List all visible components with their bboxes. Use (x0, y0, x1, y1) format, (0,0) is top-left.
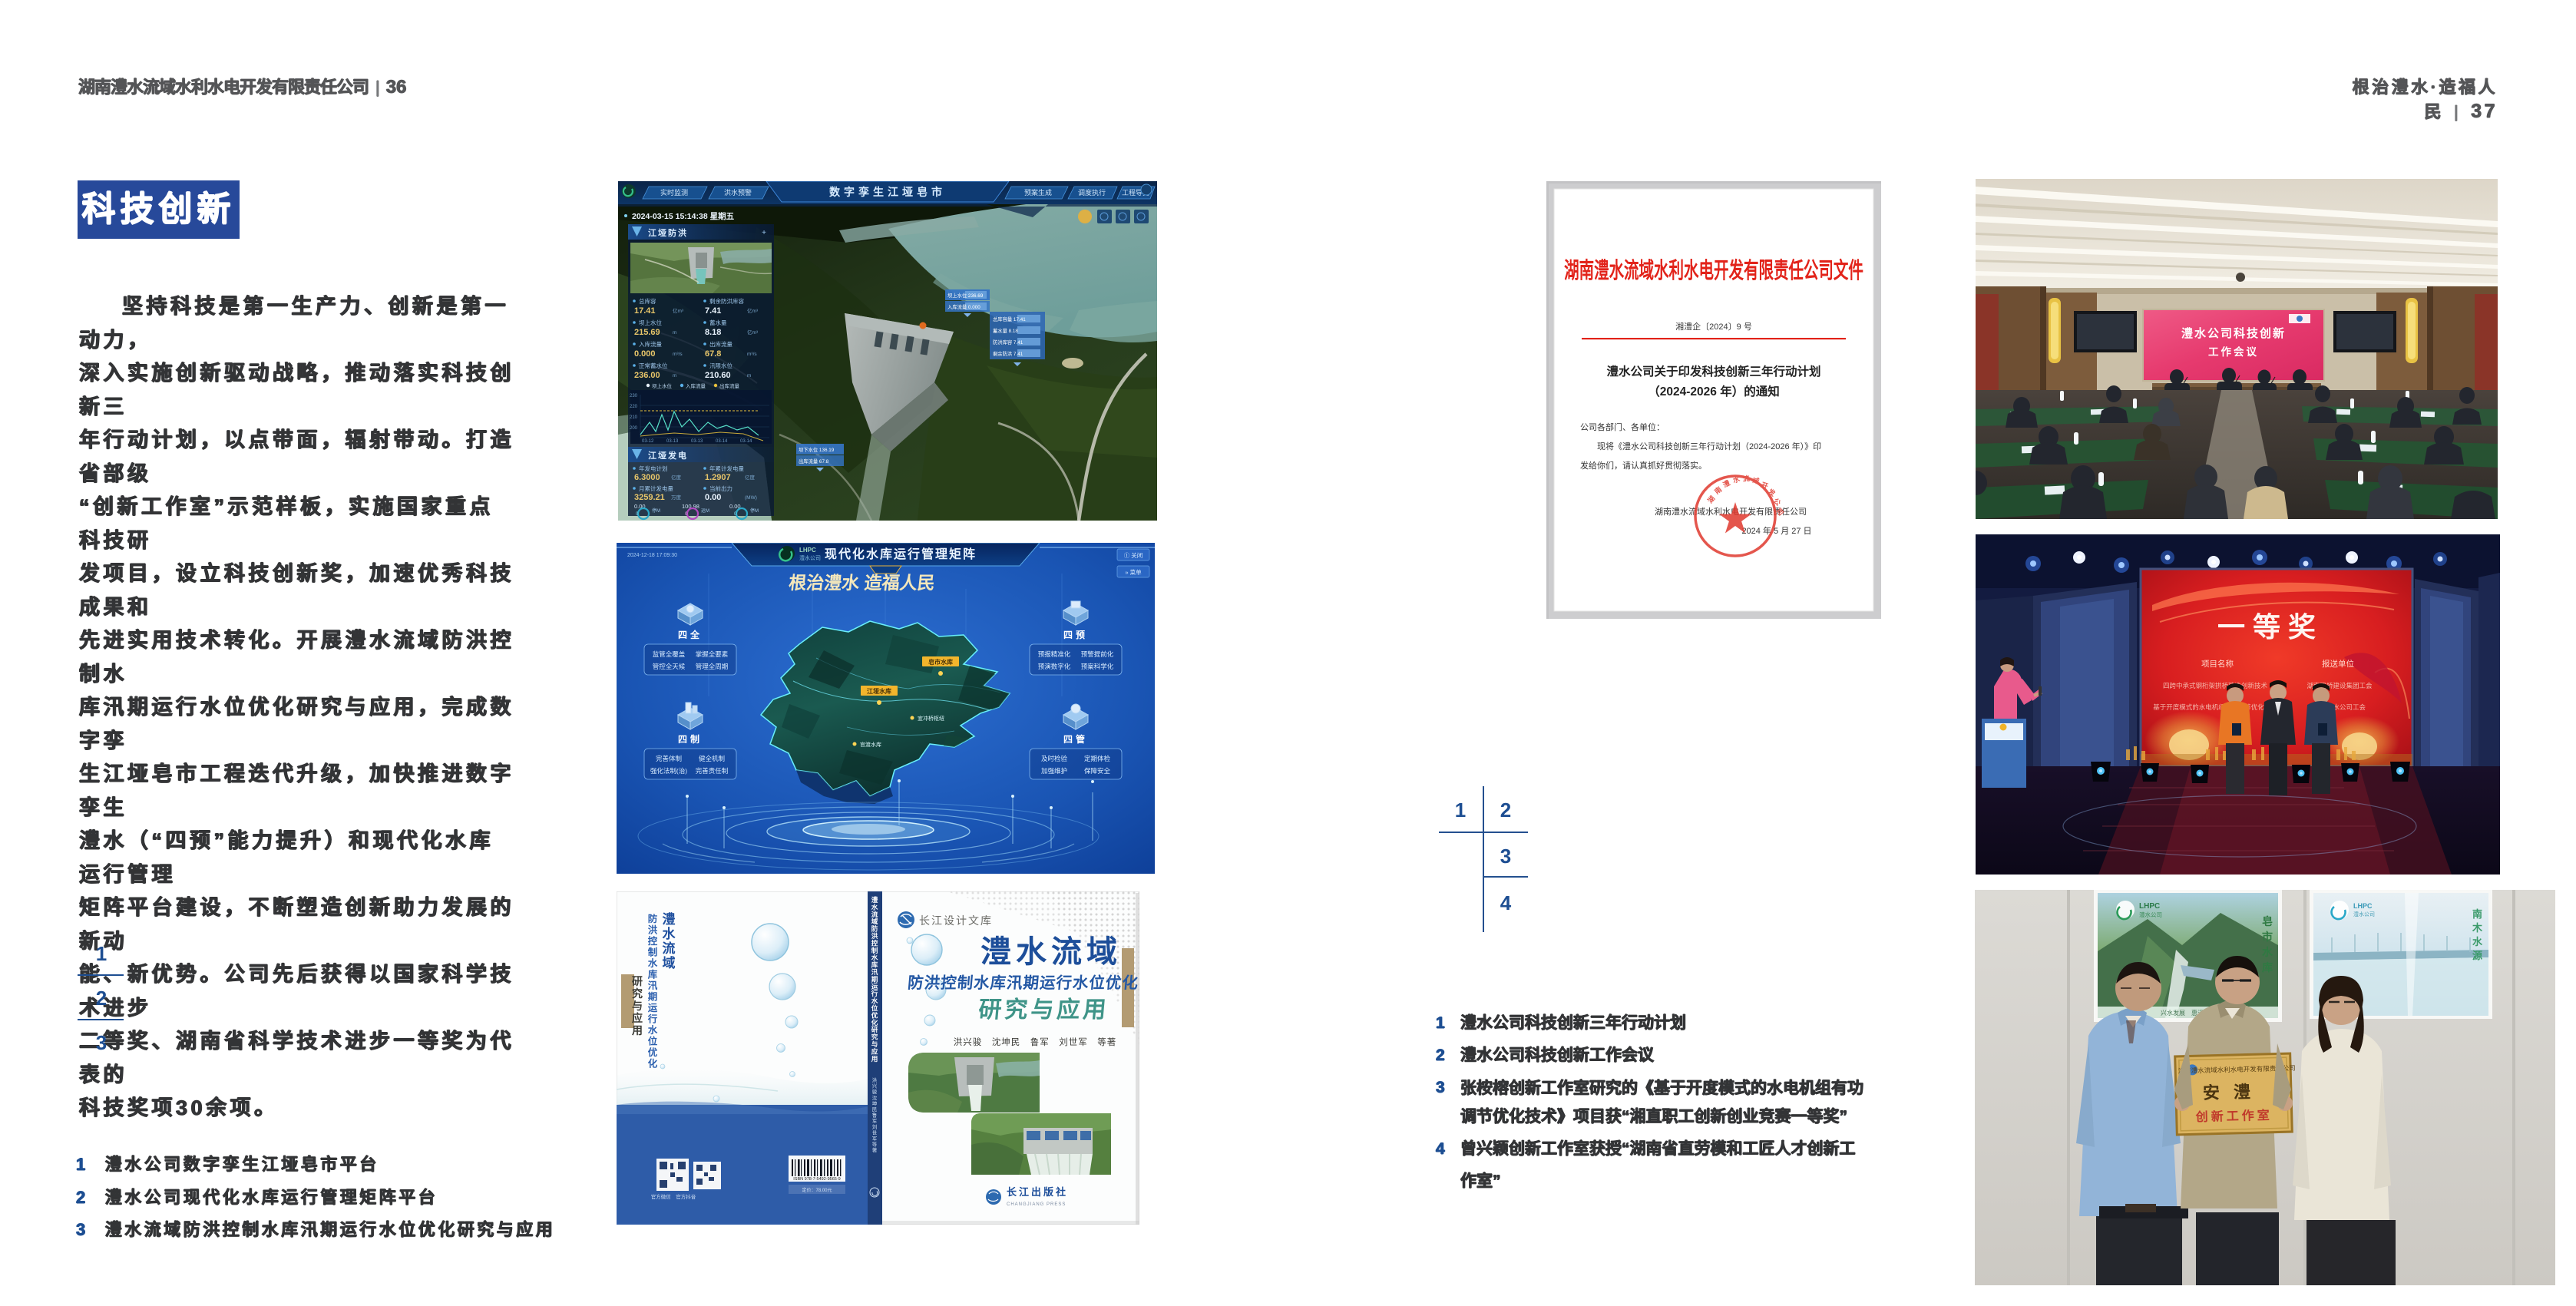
svg-text:南: 南 (2472, 908, 2482, 920)
svg-text:预演数字化: 预演数字化 (1038, 663, 1071, 670)
svg-text:掌握全要素: 掌握全要素 (696, 650, 729, 658)
svg-text:200: 200 (630, 426, 638, 431)
svg-text:预案生成: 预案生成 (1024, 188, 1052, 197)
svg-text:项目名称: 项目名称 (2201, 659, 2234, 669)
svg-text:ISBN 978-7-5492-9565-9: ISBN 978-7-5492-9565-9 (793, 1177, 840, 1182)
svg-text:出库流量: 出库流量 (719, 382, 740, 389)
svg-text:皂: 皂 (2262, 915, 2273, 927)
svg-text:四全: 四全 (678, 629, 703, 640)
svg-text:实时监测: 实时监测 (660, 188, 688, 197)
svg-text:强化法制(治): 强化法制(治) (650, 767, 687, 775)
svg-text:6.3000: 6.3000 (634, 473, 660, 482)
svg-text:健全机制: 健全机制 (699, 755, 725, 762)
svg-text:停M: 停M (652, 508, 660, 514)
svg-text:及时检验: 及时检验 (1041, 755, 1068, 762)
svg-text:（2024-2026 年）的通知: （2024-2026 年）的通知 (1648, 384, 1779, 398)
svg-text:定价：78.00元: 定价：78.00元 (802, 1187, 832, 1193)
svg-text:湘澧企〔2024〕9 号: 湘澧企〔2024〕9 号 (1675, 321, 1752, 332)
svg-text:2024 年 5 月 27 日: 2024 年 5 月 27 日 (1741, 525, 1811, 536)
svg-text:(MW): (MW) (745, 495, 757, 501)
svg-text:四制: 四制 (678, 733, 703, 745)
svg-text:管理全周期: 管理全周期 (696, 663, 729, 670)
svg-text:CHANGJIANG PRESS: CHANGJIANG PRESS (1007, 1202, 1066, 1207)
svg-text:水: 水 (2262, 946, 2273, 958)
svg-text:水: 水 (2472, 936, 2483, 947)
svg-text:3259.21: 3259.21 (634, 493, 665, 502)
svg-text:7.41: 7.41 (705, 306, 721, 316)
svg-text:湖南澧水流域水利水电开发有限责任公司文件: 湖南澧水流域水利水电开发有限责任公司文件 (1564, 257, 1863, 283)
svg-text:根治澧水 造福人民: 根治澧水 造福人民 (788, 573, 936, 593)
svg-text:澧水公司关于印发科技创新三年行动计划: 澧水公司关于印发科技创新三年行动计划 (1606, 364, 1820, 379)
svg-text:一等奖: 一等奖 (2217, 611, 2323, 643)
svg-text:m: m (747, 373, 751, 379)
svg-text:总库容量 17.41: 总库容量 17.41 (993, 316, 1026, 322)
svg-text:LHPC: LHPC (2139, 902, 2160, 911)
svg-text:防洪控制水库汛期运行水位优化: 防洪控制水库汛期运行水位优化 (647, 913, 658, 1070)
svg-text:汛限水位: 汛限水位 (709, 362, 732, 369)
svg-text:安澧: 安澧 (2203, 1082, 2265, 1103)
svg-text:0.00: 0.00 (705, 493, 721, 502)
svg-text:入库流量 0.000: 入库流量 0.000 (947, 303, 980, 310)
svg-text:江垭防洪: 江垭防洪 (648, 227, 688, 238)
svg-text:03-13: 03-13 (666, 439, 679, 444)
svg-text:研究与应用: 研究与应用 (977, 997, 1110, 1023)
svg-text:江垭水库: 江垭水库 (867, 687, 891, 695)
svg-text:m: m (673, 373, 676, 379)
svg-text:入库流量: 入库流量 (686, 382, 706, 389)
svg-text:澧水流域: 澧水流域 (980, 935, 1122, 969)
svg-text:加强维护: 加强维护 (1041, 767, 1067, 775)
svg-text:入库流量: 入库流量 (639, 340, 662, 348)
svg-text:市: 市 (2262, 931, 2273, 943)
svg-text:管控全天候: 管控全天候 (653, 663, 686, 670)
svg-text:洪水预警: 洪水预警 (724, 188, 752, 197)
svg-text:源: 源 (2472, 950, 2482, 961)
svg-text:03-12: 03-12 (642, 439, 654, 444)
svg-text:工作会议: 工作会议 (2208, 346, 2259, 358)
svg-text:官方微信 官方抖音: 官方微信 官方抖音 (651, 1193, 696, 1200)
svg-text:210.60: 210.60 (705, 371, 731, 380)
svg-text:① 关闭: ① 关闭 (1124, 551, 1143, 559)
svg-text:年累计发电量: 年累计发电量 (709, 465, 744, 472)
svg-text:亿m³: 亿m³ (747, 307, 759, 314)
svg-text:坝上水位: 坝上水位 (639, 319, 662, 326)
svg-text:完善体制: 完善体制 (656, 755, 682, 762)
svg-text:江垭发电: 江垭发电 (648, 450, 688, 461)
svg-text:库: 库 (2262, 961, 2273, 974)
svg-text:蓄水量: 蓄水量 (709, 319, 727, 326)
svg-text:澧水公司科技创新: 澧水公司科技创新 (2181, 326, 2286, 340)
svg-text:剩余防洪库容: 剩余防洪库容 (709, 297, 744, 305)
svg-text:月累计发电量: 月累计发电量 (639, 484, 673, 492)
svg-text:m³/s: m³/s (673, 352, 683, 357)
svg-text:澧水公司: 澧水公司 (2139, 911, 2162, 918)
svg-text:m: m (673, 330, 676, 336)
svg-text:亿m³: 亿m³ (747, 329, 759, 336)
svg-text:发给你们，请认真抓好贯彻落实。: 发给你们，请认真抓好贯彻落实。 (1580, 460, 1707, 471)
svg-text:总库容: 总库容 (639, 297, 656, 305)
svg-text:230: 230 (630, 394, 638, 398)
svg-text:预报精准化: 预报精准化 (1038, 650, 1071, 658)
svg-text:防洪控制水库汛期运行水位优化: 防洪控制水库汛期运行水位优化 (907, 974, 1139, 992)
svg-text:宜冲桥枢纽: 宜冲桥枢纽 (918, 715, 944, 722)
svg-text:出库流量: 出库流量 (709, 340, 732, 348)
svg-text:停M: 停M (750, 508, 759, 514)
svg-text:现将《澧水公司科技创新三年行动计划（2024-2026 年）: 现将《澧水公司科技创新三年行动计划（2024-2026 年）》印 (1597, 441, 1821, 451)
svg-text:剩余防洪 7.41: 剩余防洪 7.41 (993, 350, 1023, 357)
svg-text:0.000: 0.000 (634, 349, 656, 359)
svg-text:03-13: 03-13 (691, 439, 703, 444)
svg-text:公司各部门、各单位：: 公司各部门、各单位： (1580, 422, 1665, 432)
svg-text:澧水流域防洪控制水库汛期运行水位优化研究与应用: 澧水流域防洪控制水库汛期运行水位优化研究与应用 (871, 895, 878, 1063)
svg-text:基于开度模式的水电机组有功调节优化技术: 基于开度模式的水电机组有功调节优化技术 (2153, 703, 2277, 711)
svg-text:长江出版社: 长江出版社 (1007, 1186, 1068, 1198)
svg-text:215.69: 215.69 (634, 328, 660, 337)
svg-text:四管: 四管 (1063, 733, 1088, 745)
svg-text:四跨中承式钢桁架拱桥建造创新技术: 四跨中承式钢桁架拱桥建造创新技术 (2163, 682, 2268, 689)
svg-text:正常蓄水位: 正常蓄水位 (639, 362, 668, 369)
svg-text:220: 220 (630, 405, 638, 409)
svg-text:03-14: 03-14 (740, 439, 752, 444)
svg-text:17.41: 17.41 (634, 306, 656, 316)
svg-text:调度执行: 调度执行 (1078, 188, 1106, 197)
svg-text:保障安全: 保障安全 (1084, 767, 1111, 775)
svg-text:澧水公司: 澧水公司 (799, 554, 821, 561)
svg-text:67.8: 67.8 (705, 349, 721, 359)
svg-text:预案科学化: 预案科学化 (1081, 663, 1114, 670)
svg-text:» 菜单: » 菜单 (1125, 568, 1142, 576)
svg-text:万度: 万度 (671, 494, 682, 501)
svg-text:澧水流域: 澧水流域 (663, 911, 676, 970)
svg-text:数字孪生江垭皂市: 数字孪生江垭皂市 (829, 186, 946, 198)
svg-text:2024-03-15 15:14:38 星期五: 2024-03-15 15:14:38 星期五 (632, 211, 735, 221)
svg-text:定期体检: 定期体检 (1084, 755, 1111, 762)
svg-text:8.18: 8.18 (705, 328, 721, 337)
svg-text:LHPC: LHPC (799, 547, 816, 554)
svg-text:报送单位: 报送单位 (2322, 659, 2355, 669)
svg-text:亿度: 亿度 (671, 474, 682, 481)
svg-text:皂市水库: 皂市水库 (928, 658, 953, 666)
svg-text:流: 流 (1742, 474, 1750, 483)
svg-text:洪兴骏 沈坤民 鲁军 刘世军 等著: 洪兴骏 沈坤民 鲁军 刘世军 等著 (954, 1037, 1117, 1047)
svg-text:监管全覆盖: 监管全覆盖 (653, 650, 686, 658)
svg-text:完善责任制: 完善责任制 (696, 767, 729, 775)
svg-text:年发电计划: 年发电计划 (639, 465, 668, 472)
svg-text:坝上水位: 坝上水位 (652, 382, 673, 389)
svg-text:蓄水量 8.18: 蓄水量 8.18 (993, 327, 1018, 334)
svg-text:2024-12-18 17:09:30: 2024-12-18 17:09:30 (627, 553, 677, 558)
svg-text:03-14: 03-14 (716, 439, 728, 444)
svg-text:域: 域 (1752, 476, 1760, 485)
svg-text:运M: 运M (701, 508, 709, 514)
svg-text:洪兴骏沈坤民鲁军刘世军等著: 洪兴骏沈坤民鲁军刘世军等著 (872, 1076, 878, 1153)
svg-text:预警提前化: 预警提前化 (1081, 650, 1114, 658)
svg-text:出库流量 67.8: 出库流量 67.8 (799, 458, 829, 465)
svg-text:坝上水位 236.69: 坝上水位 236.69 (947, 292, 984, 299)
svg-text:研究与应用: 研究与应用 (632, 975, 643, 1037)
svg-text:现代化水库运行管理矩阵: 现代化水库运行管理矩阵 (825, 547, 977, 561)
svg-text:1.2907: 1.2907 (705, 473, 731, 482)
svg-text:澧水公司: 澧水公司 (2353, 911, 2375, 918)
svg-text:四预: 四预 (1063, 630, 1088, 640)
svg-text:防洪库容 7.41: 防洪库容 7.41 (993, 339, 1023, 346)
svg-text:官渡水库: 官渡水库 (860, 741, 881, 748)
svg-text:LHPC: LHPC (2353, 902, 2373, 910)
svg-text:210: 210 (630, 415, 638, 420)
svg-text:长江设计文库: 长江设计文库 (919, 914, 993, 927)
svg-text:亿m³: 亿m³ (673, 307, 684, 314)
svg-text:亿度: 亿度 (745, 474, 756, 481)
svg-text:+: + (762, 229, 766, 237)
svg-text:木: 木 (2472, 922, 2483, 934)
svg-text:坝下水位 136.19: 坝下水位 136.19 (799, 446, 835, 453)
svg-text:m³/s: m³/s (747, 352, 757, 357)
svg-text:236.00: 236.00 (634, 371, 660, 380)
svg-text:当前出力: 当前出力 (709, 484, 732, 492)
